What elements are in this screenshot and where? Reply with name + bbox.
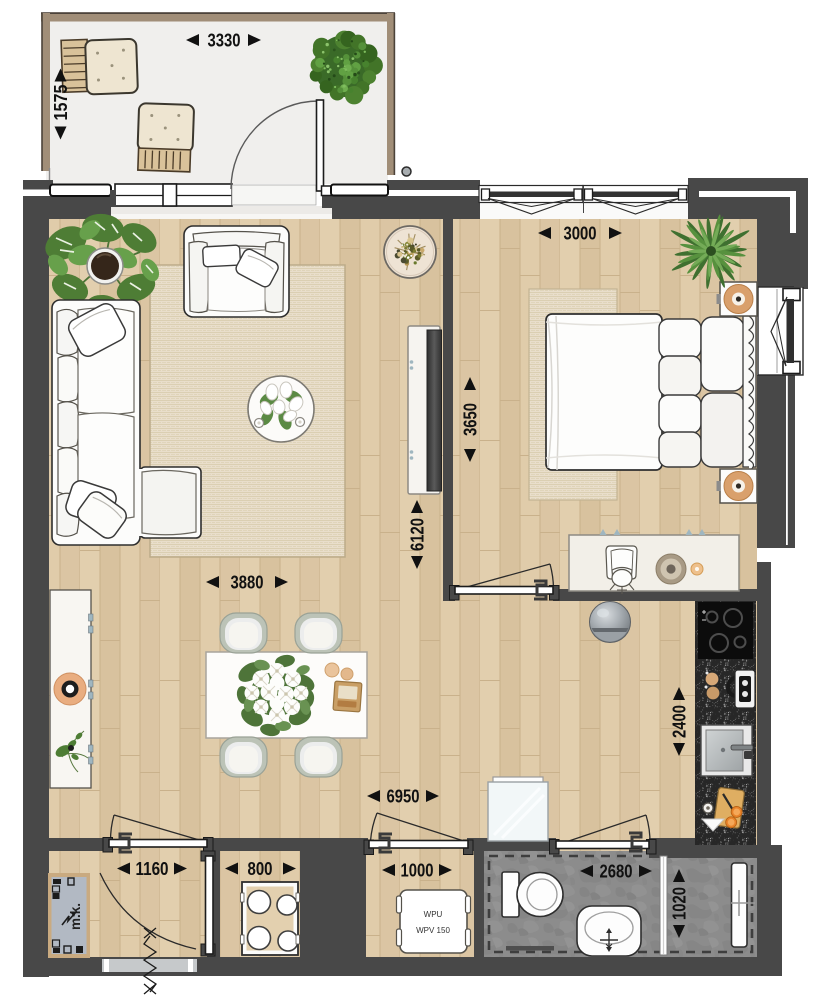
svg-text:1160: 1160 xyxy=(136,858,169,879)
svg-text:3880: 3880 xyxy=(231,572,264,593)
svg-text:6120: 6120 xyxy=(407,518,428,551)
svg-text:2680: 2680 xyxy=(600,861,633,882)
svg-text:WPU: WPU xyxy=(424,910,443,919)
svg-text:2400: 2400 xyxy=(669,705,690,738)
svg-text:3000: 3000 xyxy=(564,223,597,244)
svg-text:3650: 3650 xyxy=(460,403,481,436)
svg-text:1000: 1000 xyxy=(401,860,434,881)
svg-text:1020: 1020 xyxy=(669,887,690,920)
svg-text:6950: 6950 xyxy=(387,786,420,807)
svg-text:m.k.: m.k. xyxy=(68,903,83,930)
svg-text:WPV 150: WPV 150 xyxy=(416,926,450,935)
svg-text:3330: 3330 xyxy=(208,30,241,51)
svg-text:1575: 1575 xyxy=(50,85,71,121)
svg-text:800: 800 xyxy=(248,858,273,879)
